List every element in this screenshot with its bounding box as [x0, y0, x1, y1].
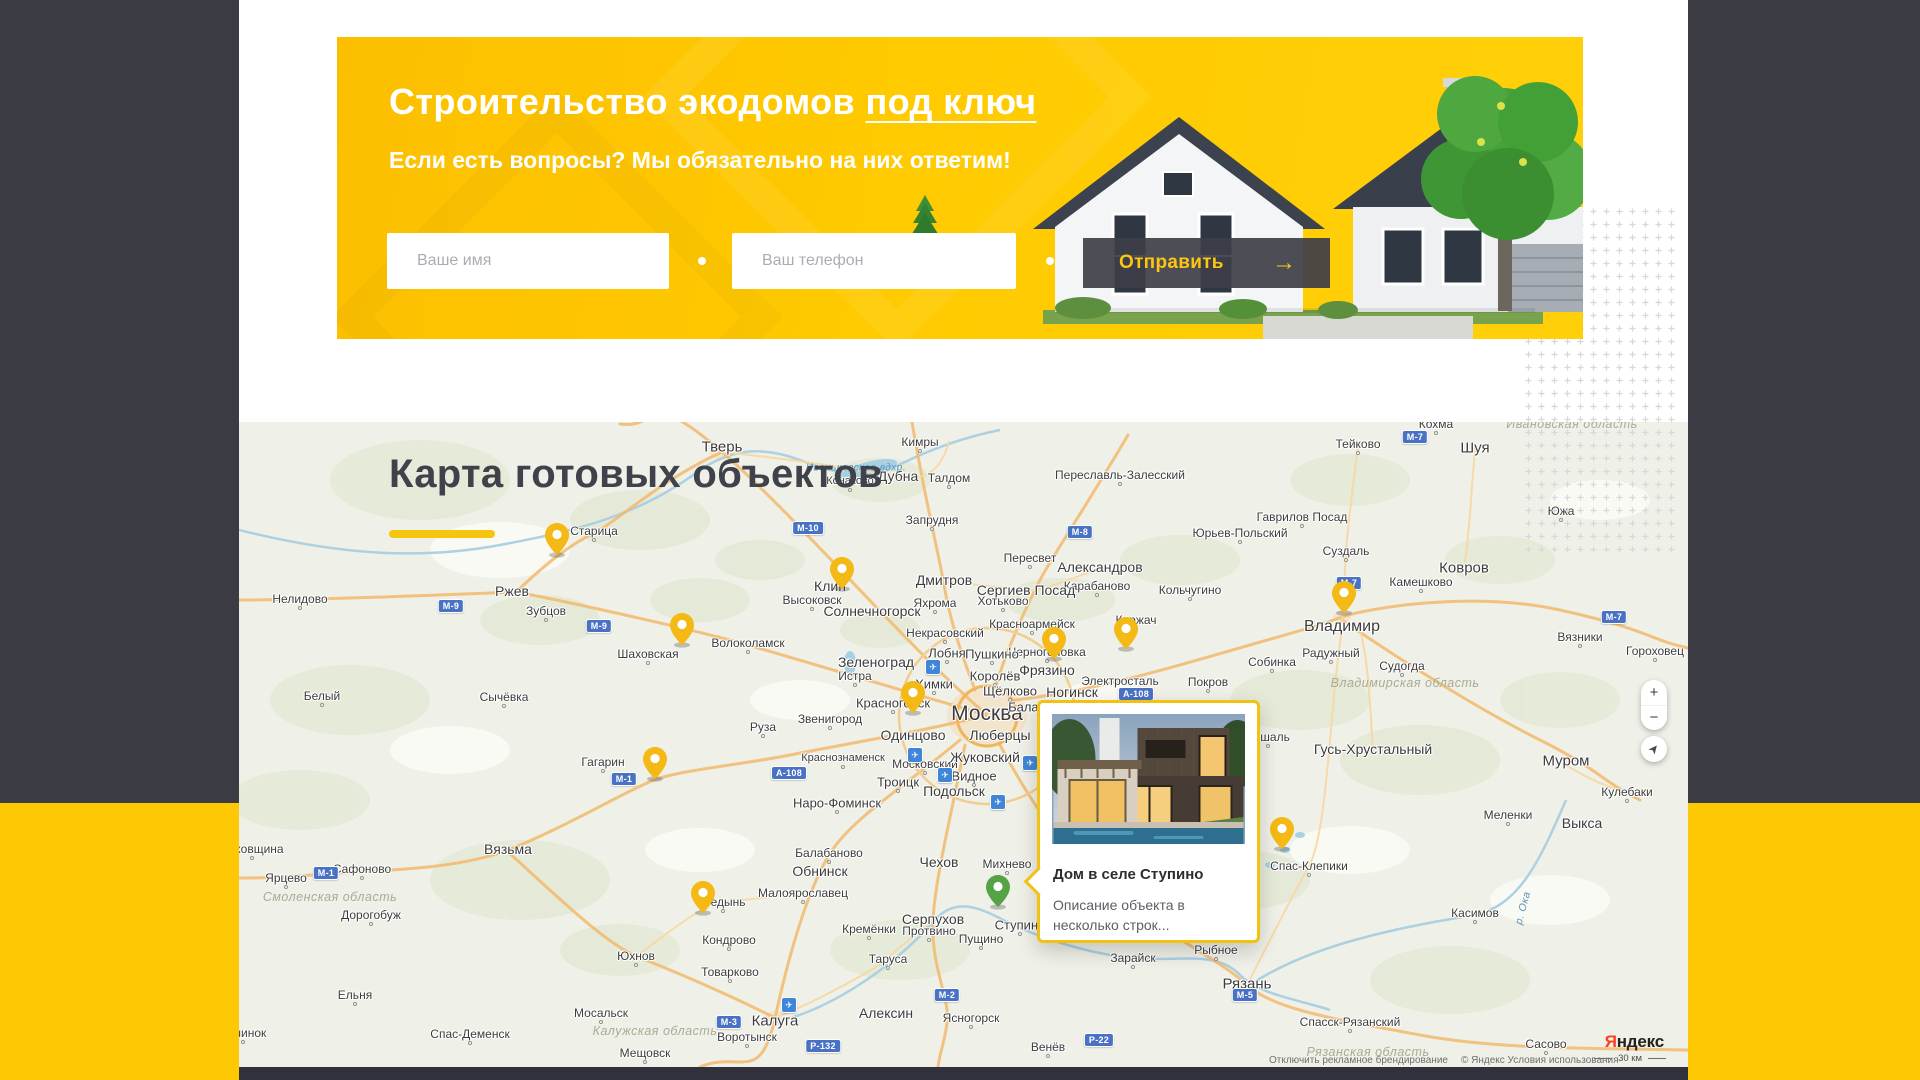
- popup-title: Дом в селе Ступино: [1053, 866, 1203, 883]
- map-pin-yellow[interactable]: [669, 612, 695, 648]
- scale-dash-right: [1648, 1058, 1666, 1059]
- yandex-logo-ya: Я: [1605, 1032, 1617, 1051]
- form-separator-dot: [1046, 257, 1054, 265]
- title-underline-bar: [389, 530, 495, 538]
- bottom-dark-strip: [239, 1067, 1688, 1080]
- popup-house-photo: [1052, 714, 1245, 844]
- yellow-band-right: [1688, 803, 1920, 1080]
- banner-title: Строительство экодомов под ключ: [389, 81, 1036, 123]
- yandex-logo[interactable]: Яндекс: [1605, 1032, 1664, 1052]
- banner-title-text: Строительство экодомов: [389, 81, 865, 122]
- hero-banner: Строительство экодомов под ключ Если ест…: [337, 37, 1583, 339]
- map-pin-yellow[interactable]: [690, 880, 716, 916]
- terms-link[interactable]: © Яндекс Условия использования: [1461, 1055, 1619, 1066]
- house-illustration: [1003, 44, 1583, 339]
- map-base: [239, 422, 1688, 1067]
- form-separator-dot: [698, 257, 706, 265]
- phone-input[interactable]: [732, 233, 1016, 289]
- popup-description: Описание объекта в несколько строк...: [1053, 896, 1223, 935]
- zoom-in-button[interactable]: +: [1641, 680, 1667, 706]
- map-pin-yellow[interactable]: [642, 746, 668, 782]
- geolocation-button[interactable]: [1641, 736, 1667, 762]
- page: ТверьКимрыДубнаТалдомКонаковоЗапрудняПер…: [0, 0, 1920, 1080]
- navigation-arrow-icon: [1648, 743, 1660, 755]
- name-input[interactable]: [387, 233, 669, 289]
- submit-button[interactable]: Отправить →: [1083, 238, 1330, 288]
- banner-title-underlined: под ключ: [865, 81, 1036, 122]
- map-popup-card[interactable]: Дом в селе Ступино Описание объекта в не…: [1037, 700, 1260, 943]
- banner-subtitle: Если есть вопросы? Мы обязательно на них…: [389, 147, 1011, 174]
- map-pin-yellow[interactable]: [900, 680, 926, 716]
- map-pin-yellow[interactable]: [1113, 616, 1139, 652]
- map-pin-yellow[interactable]: [544, 522, 570, 558]
- map-pin-yellow[interactable]: [829, 556, 855, 592]
- scale-label: 30 км: [1618, 1053, 1642, 1064]
- yandex-map[interactable]: ТверьКимрыДубнаТалдомКонаковоЗапрудняПер…: [239, 422, 1688, 1067]
- map-pin-yellow[interactable]: [1331, 580, 1357, 616]
- map-pin-yellow[interactable]: [1269, 816, 1295, 852]
- map-section-title: Карта готовых объектов: [389, 452, 883, 497]
- zoom-out-button[interactable]: −: [1641, 706, 1667, 731]
- arrow-right-icon: →: [1272, 251, 1296, 275]
- map-pin-yellow[interactable]: [1041, 626, 1067, 662]
- disable-branding-link[interactable]: Отключить рекламное брендирование: [1269, 1055, 1448, 1066]
- zoom-controls: + −: [1641, 680, 1667, 730]
- yellow-band-left: [0, 803, 239, 1080]
- yandex-logo-rest: ндекс: [1617, 1032, 1664, 1051]
- submit-label: Отправить: [1119, 252, 1224, 274]
- map-pin-green-selected[interactable]: [985, 874, 1011, 910]
